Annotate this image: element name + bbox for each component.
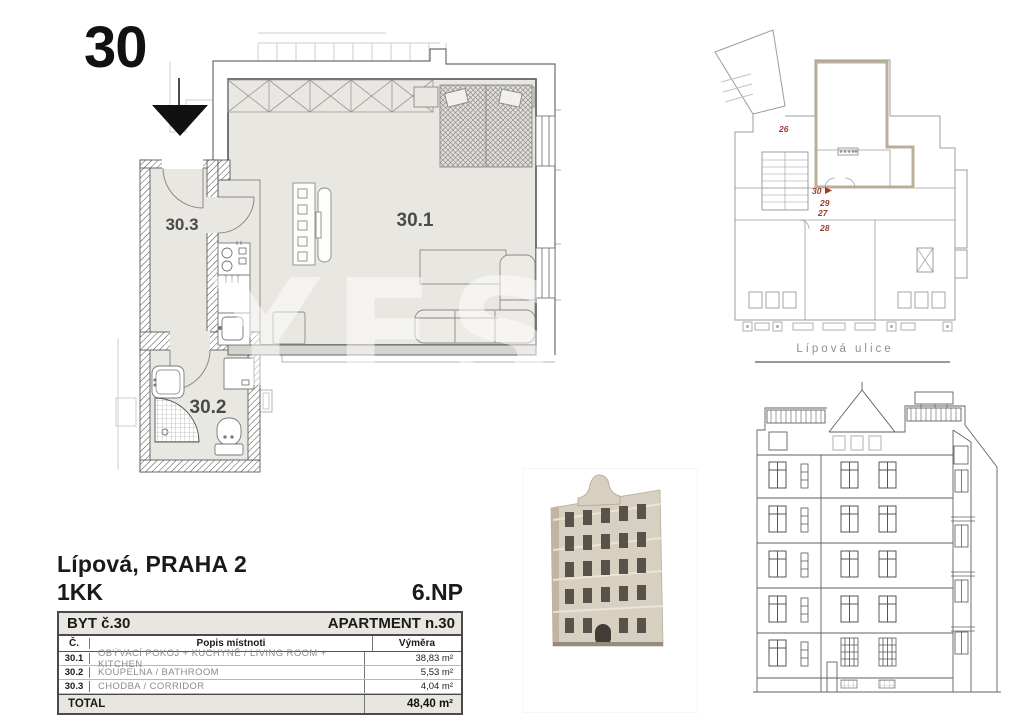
col-number: Č.: [59, 638, 90, 649]
info-block: Lípová, PRAHA 2 1KK 6.NP BYT č.30 APARTM…: [57, 551, 463, 715]
plan-sheet: 30: [0, 0, 1024, 724]
elevation-windows: [769, 446, 968, 688]
window-right-wall: [536, 116, 555, 298]
table-header: BYT č.30 APARTMENT n.30: [59, 613, 461, 636]
room-area: 4,04 m²: [364, 680, 461, 693]
total-label: TOTAL: [59, 698, 364, 710]
room-description: KOUPELNA / BATHROOM: [90, 667, 364, 678]
room-area: 38,83 m²: [364, 652, 461, 665]
table-row: 30.3 CHODBA / CORRIDOR 4,04 m²: [59, 680, 461, 694]
key-plan-drawing: [715, 30, 967, 331]
room-number: 30.1: [59, 653, 90, 664]
unit-label-29: 29: [819, 198, 830, 208]
kitchen-counter: [218, 241, 250, 345]
room-label-living: 30.1: [397, 210, 434, 231]
unit-label-28: 28: [819, 223, 830, 233]
room-number: 30.2: [59, 667, 90, 678]
key-plan-unit-labels: 26 30 29 27 28: [778, 124, 832, 233]
building-elevation: [745, 370, 1020, 720]
locator-arrow-icon: [152, 78, 208, 136]
col-area: Výměra: [372, 636, 461, 651]
room-description: CHODBA / CORRIDOR: [90, 681, 364, 692]
floor-label: 6.NP: [412, 579, 463, 606]
table-row: 30.2 KOUPELNA / BATHROOM 5,53 m²: [59, 666, 461, 680]
table-header-left: BYT č.30: [67, 615, 130, 632]
key-plan-unit30-highlight: [816, 62, 913, 187]
main-floor-plan: 30.1: [108, 0, 578, 480]
table-header-right: APARTMENT n.30: [328, 615, 455, 632]
total-area: 48,40 m²: [364, 695, 461, 713]
room-area: 5,53 m²: [364, 666, 461, 679]
facade-photo: [523, 468, 698, 713]
location-title: Lípová, PRAHA 2: [57, 551, 463, 578]
street-label: Lípová ulice: [796, 343, 893, 355]
room-label-bathroom: 30.2: [190, 397, 227, 418]
unit-label-27: 27: [817, 208, 829, 218]
table-total-row: TOTAL 48,40 m²: [59, 694, 461, 713]
room-label-corridor: 30.3: [165, 215, 198, 234]
living-room-south-wall: [228, 345, 536, 355]
disposition-label: 1KK: [57, 579, 103, 606]
kitchen-island: [293, 183, 331, 265]
unit-label-26: 26: [778, 124, 789, 134]
unit-label-30: 30: [812, 186, 822, 196]
table-row: 30.1 OBÝVACÍ POKOJ + KUCHYNĚ / LIVING RO…: [59, 652, 461, 666]
apartment-table: BYT č.30 APARTMENT n.30 Č. Popis místnot…: [57, 611, 463, 715]
key-plan: 26 30 29 27 28 Lípová ulice: [705, 20, 970, 375]
room-number: 30.3: [59, 681, 90, 692]
